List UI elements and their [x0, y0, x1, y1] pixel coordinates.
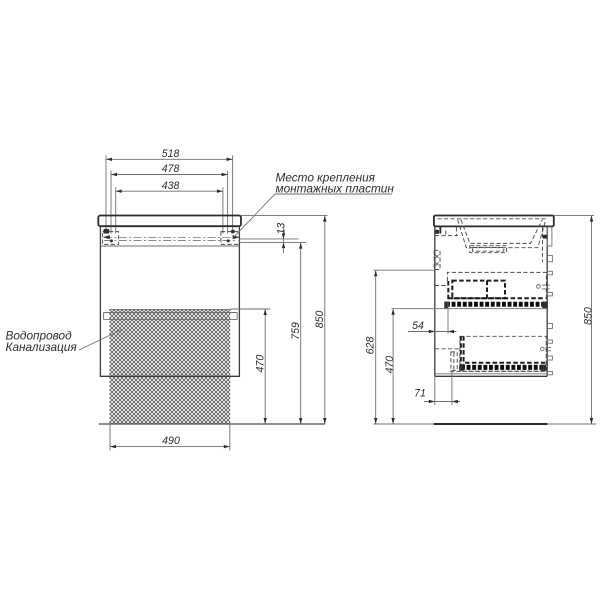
svg-text:Канализация: Канализация [6, 340, 78, 354]
svg-text:478: 478 [162, 163, 180, 175]
svg-text:850: 850 [583, 307, 595, 325]
svg-text:54: 54 [412, 320, 424, 332]
svg-text:850: 850 [314, 310, 326, 328]
svg-text:628: 628 [365, 337, 377, 355]
svg-text:470: 470 [384, 356, 396, 374]
svg-text:438: 438 [162, 180, 180, 192]
svg-text:470: 470 [255, 355, 267, 373]
svg-text:монтажных пластин: монтажных пластин [276, 182, 395, 196]
svg-text:759: 759 [290, 322, 302, 340]
svg-text:518: 518 [162, 148, 180, 160]
svg-text:490: 490 [162, 435, 180, 447]
svg-text:13: 13 [275, 223, 287, 235]
svg-text:71: 71 [414, 388, 426, 400]
